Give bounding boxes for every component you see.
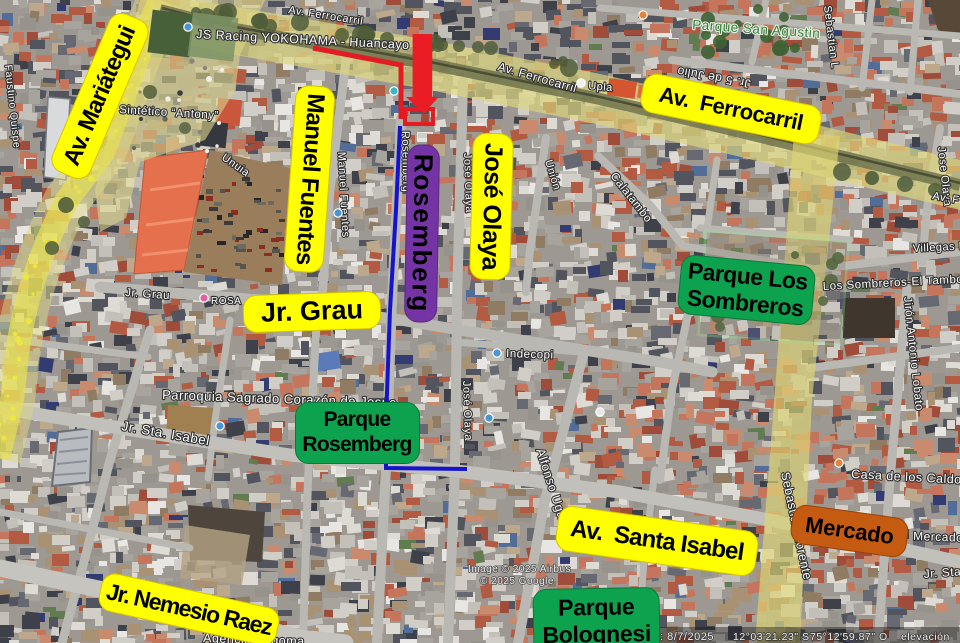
svg-text:José Olaya: José Olaya bbox=[460, 381, 474, 442]
svg-text:© 2025 Google: © 2025 Google bbox=[480, 576, 554, 587]
svg-text:75°12'59.87" O: 75°12'59.87" O bbox=[810, 631, 888, 643]
svg-text:: 8/7/2025: : 8/7/2025 bbox=[660, 631, 714, 643]
svg-text:elevación: elevación bbox=[901, 631, 950, 643]
svg-text:Villegas P: Villegas P bbox=[913, 240, 960, 255]
svg-text:Jr. Sta: Jr. Sta bbox=[923, 564, 960, 581]
svg-text:Mercado: Mercado bbox=[913, 529, 960, 545]
svg-text:Upla: Upla bbox=[588, 80, 614, 94]
svg-text:12°03'21.23" S: 12°03'21.23" S bbox=[733, 631, 810, 643]
svg-text:Indecopi: Indecopi bbox=[506, 348, 554, 362]
svg-text:Image © 2025 Airbus: Image © 2025 Airbus bbox=[468, 564, 571, 575]
svg-text:ROSA: ROSA bbox=[211, 296, 241, 307]
